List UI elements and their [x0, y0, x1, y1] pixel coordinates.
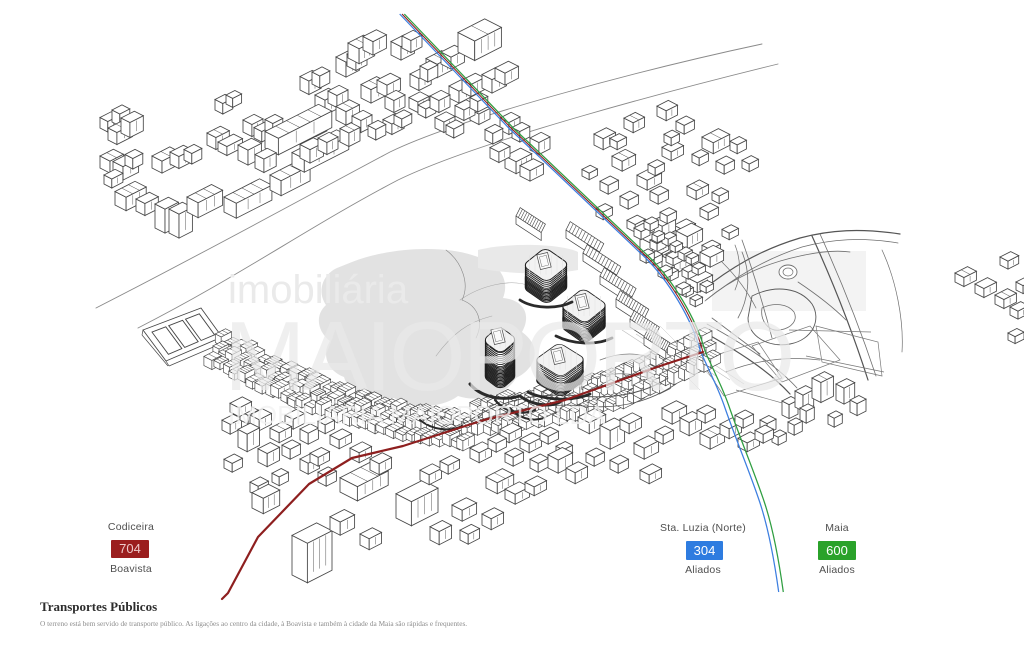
svg-text:MAIOPORTO: MAIOPORTO — [224, 301, 792, 411]
svg-text:IMOBILIÁRIA MAIOPORTO LDA: IMOBILIÁRIA MAIOPORTO LDA — [228, 400, 606, 430]
